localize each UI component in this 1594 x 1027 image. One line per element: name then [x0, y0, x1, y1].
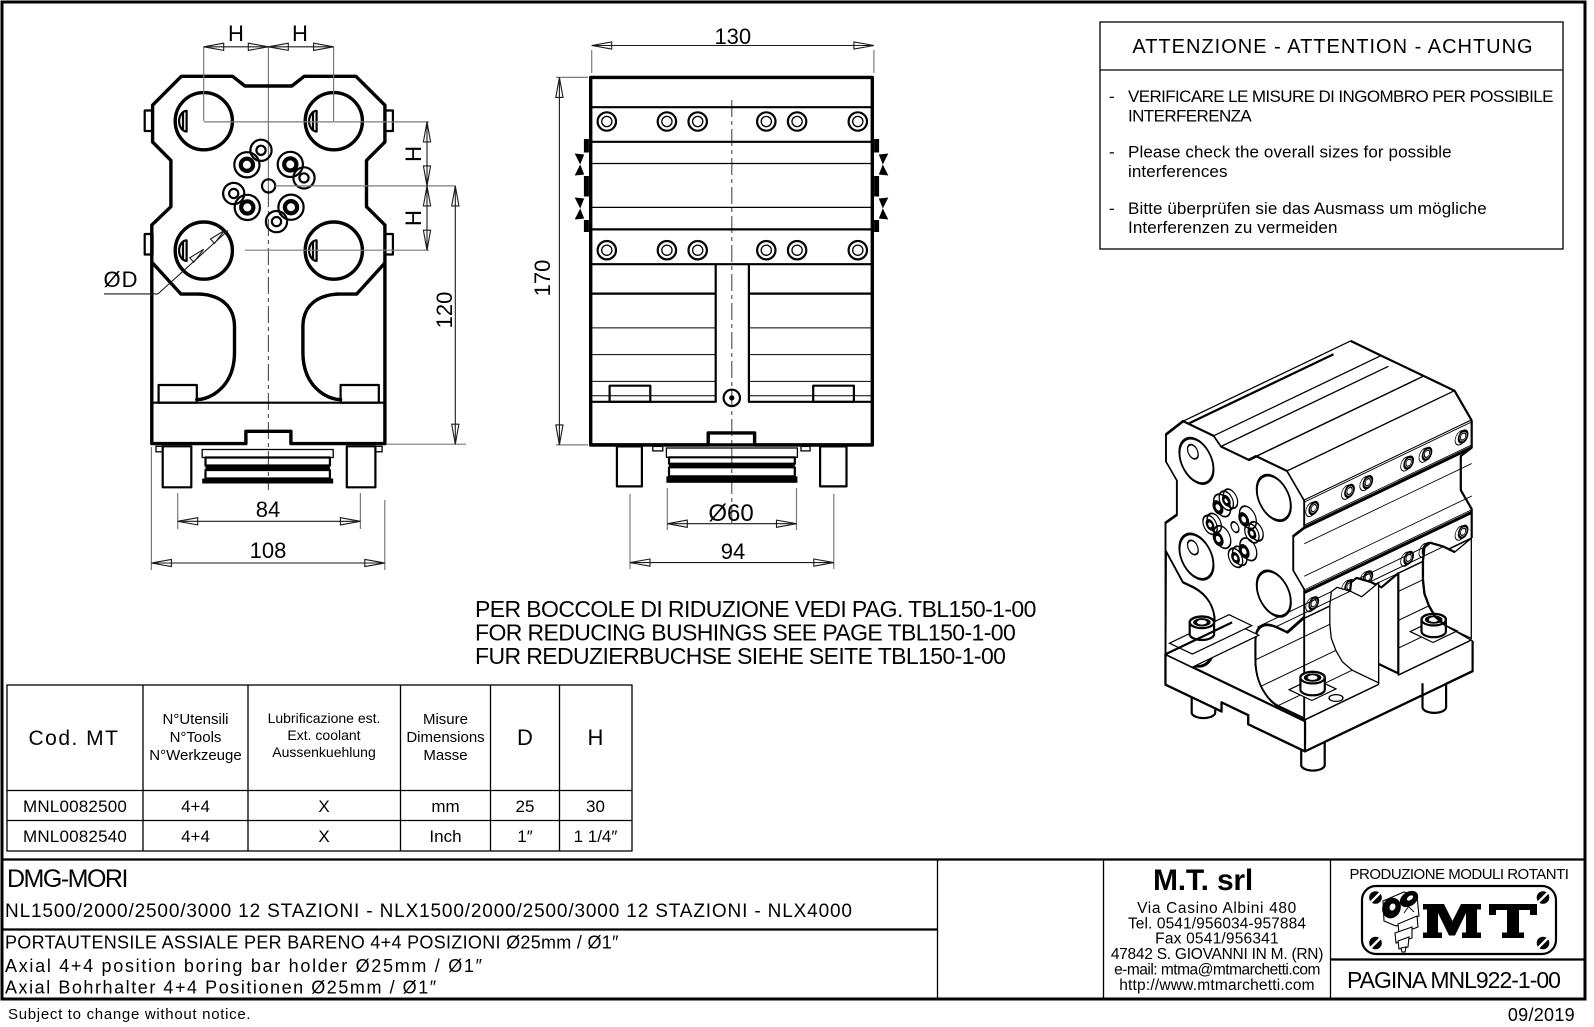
- svg-text:H: H: [401, 146, 426, 162]
- svg-text:X: X: [318, 797, 329, 816]
- svg-text:09/2019: 09/2019: [1508, 1005, 1575, 1025]
- svg-text:MNL0082500: MNL0082500: [23, 797, 127, 816]
- svg-text:http://www.mtmarchetti.com: http://www.mtmarchetti.com: [1119, 977, 1315, 994]
- svg-text:Axial Bohrhalter 4+4 Positione: Axial Bohrhalter 4+4 Positionen Ø25mm / …: [5, 978, 438, 998]
- svg-text:MNL0082540: MNL0082540: [23, 827, 127, 846]
- svg-text:170: 170: [530, 260, 555, 297]
- svg-text:VERIFICARE LE MISURE DI INGOMB: VERIFICARE LE MISURE DI INGOMBRO PER POS…: [1128, 87, 1553, 106]
- svg-text:Inch: Inch: [429, 827, 461, 846]
- svg-text:47842 S. GIOVANNI IN M. (RN): 47842 S. GIOVANNI IN M. (RN): [1111, 946, 1323, 963]
- svg-text:H: H: [401, 210, 426, 226]
- svg-text:PAGINA MNL922-1-00: PAGINA MNL922-1-00: [1347, 967, 1560, 993]
- svg-text:FUR REDUZIERBUCHSE SIEHE SEITE: FUR REDUZIERBUCHSE SIEHE SEITE TBL150-1-…: [475, 643, 1005, 669]
- svg-text:1″: 1″: [517, 827, 532, 846]
- svg-text:N°Utensili: N°Utensili: [162, 711, 228, 728]
- svg-text:H: H: [228, 21, 244, 46]
- svg-text:PORTAUTENSILE ASSIALE PER BARE: PORTAUTENSILE ASSIALE PER BARENO 4+4 POS…: [5, 933, 619, 953]
- svg-text:H: H: [292, 21, 308, 46]
- svg-text:DMG-MORI: DMG-MORI: [7, 865, 127, 893]
- svg-text:Via Casino Albini 480: Via Casino Albini 480: [1137, 900, 1297, 917]
- svg-text:X: X: [318, 827, 329, 846]
- svg-text:H: H: [588, 725, 604, 750]
- svg-text:25: 25: [516, 797, 535, 816]
- svg-text:ØD: ØD: [104, 267, 139, 292]
- svg-text:30: 30: [586, 797, 605, 816]
- svg-text:N°Werkzeuge: N°Werkzeuge: [149, 747, 241, 764]
- svg-text:Ext. coolant: Ext. coolant: [287, 727, 360, 743]
- svg-text:-: -: [1109, 143, 1115, 162]
- svg-text:Cod. MT: Cod. MT: [28, 727, 119, 750]
- svg-text:interferences: interferences: [1128, 162, 1228, 181]
- svg-text:84: 84: [256, 497, 280, 522]
- svg-text:4+4: 4+4: [181, 827, 210, 846]
- svg-text:130: 130: [714, 24, 751, 49]
- svg-text:94: 94: [721, 539, 745, 564]
- svg-text:Aussenkuehlung: Aussenkuehlung: [272, 744, 376, 760]
- svg-text:PER BOCCOLE DI RIDUZIONE VEDI: PER BOCCOLE DI RIDUZIONE VEDI PAG. TBL15…: [475, 596, 1036, 622]
- svg-text:N°Tools: N°Tools: [170, 729, 222, 746]
- svg-text:D: D: [517, 725, 533, 750]
- svg-text:Fax 0541/956341: Fax 0541/956341: [1155, 931, 1279, 948]
- svg-text:Dimensions: Dimensions: [406, 729, 484, 746]
- svg-text:Misure: Misure: [423, 711, 468, 728]
- svg-text:mm: mm: [431, 797, 459, 816]
- svg-text:Interferenzen zu vermeiden: Interferenzen zu vermeiden: [1128, 218, 1338, 237]
- svg-text:-: -: [1109, 87, 1115, 106]
- svg-text:e-mail: mtma@mtmarchetti.com: e-mail: mtma@mtmarchetti.com: [1114, 962, 1320, 979]
- svg-text:108: 108: [250, 538, 287, 563]
- svg-text:NL1500/2000/2500/3000 12 STAZI: NL1500/2000/2500/3000 12 STAZIONI - NLX1…: [5, 901, 853, 922]
- svg-text:M.T. srl: M.T. srl: [1153, 864, 1253, 897]
- svg-text:Masse: Masse: [423, 747, 467, 764]
- svg-text:4+4: 4+4: [181, 797, 210, 816]
- svg-text:-: -: [1109, 199, 1115, 218]
- svg-text:Please check the overall sizes: Please check the overall sizes for possi…: [1128, 143, 1452, 162]
- svg-text:FOR REDUCING BUSHINGS SEE PAGE: FOR REDUCING BUSHINGS SEE PAGE TBL150-1-…: [475, 620, 1015, 646]
- svg-text:Axial 4+4 position boring bar: Axial 4+4 position boring bar holder Ø25…: [5, 956, 484, 976]
- svg-text:Lubrificazione est.: Lubrificazione est.: [268, 710, 381, 726]
- svg-text:Subject to change without noti: Subject to change without notice.: [8, 1006, 251, 1023]
- svg-text:120: 120: [432, 292, 457, 329]
- svg-text:ATTENZIONE - ATTENTION - ACHTU: ATTENZIONE - ATTENTION - ACHTUNG: [1132, 36, 1533, 58]
- svg-text:Ø60: Ø60: [708, 500, 753, 527]
- svg-text:PRODUZIONE MODULI ROTANTI: PRODUZIONE MODULI ROTANTI: [1350, 866, 1569, 883]
- svg-text:1 1/4″: 1 1/4″: [574, 827, 618, 846]
- svg-text:INTERFERENZA: INTERFERENZA: [1128, 107, 1252, 126]
- svg-text:Bitte überprüfen sie das Ausma: Bitte überprüfen sie das Ausmass um mögl…: [1128, 199, 1487, 218]
